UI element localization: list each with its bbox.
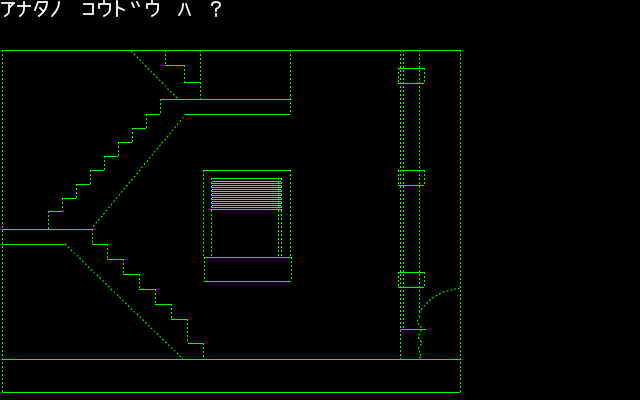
scene-staircase (2, 50, 291, 359)
game-screen[interactable]: アナタノ コウト゛ウ ハ ? (0, 0, 640, 400)
scene-pipe (398, 50, 460, 359)
scene-window (203, 170, 292, 282)
scene-canvas (0, 0, 640, 400)
scene-room (2, 50, 461, 393)
prompt-text-glyphs (2, 1, 220, 16)
window-blind (212, 182, 281, 208)
